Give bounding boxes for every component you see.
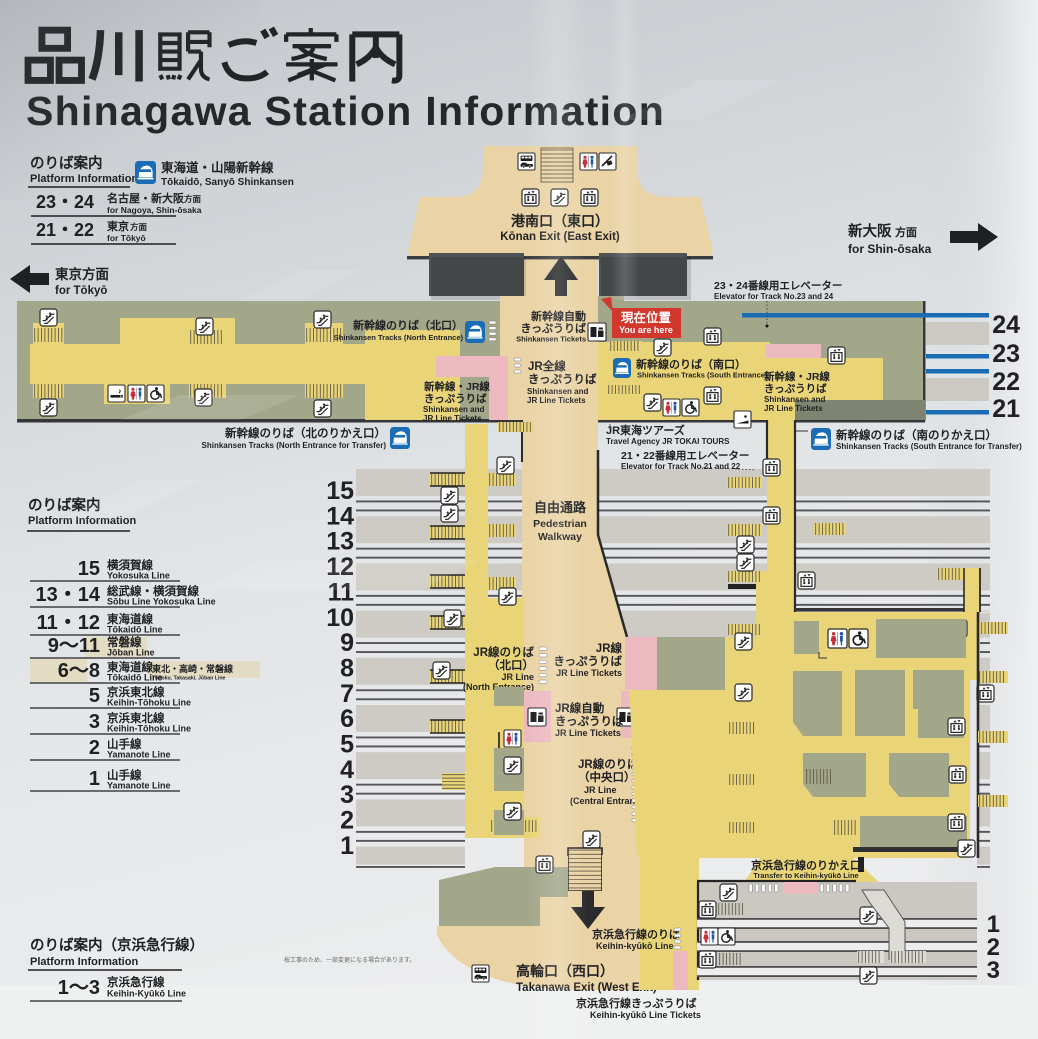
svg-text:for Shin-ōsaka: for Shin-ōsaka: [848, 242, 932, 256]
svg-text:京浜急行線のりば: 京浜急行線のりば: [592, 927, 680, 941]
svg-text:Elevator for Track No.23 and 2: Elevator for Track No.23 and 24: [714, 292, 834, 301]
svg-text:Shinkansen and: Shinkansen and: [423, 405, 484, 414]
svg-text:21・22: 21・22: [36, 220, 94, 240]
svg-text:桜工事のため、一部変更になる場合があります。: 桜工事のため、一部変更になる場合があります。: [284, 956, 415, 964]
svg-text:京浜急行線: 京浜急行線: [107, 975, 165, 989]
svg-text:JR線のりば: JR線のりば: [473, 645, 534, 659]
svg-text:新大阪: 新大阪: [848, 222, 892, 240]
svg-text:新幹線のりば（南のりかえ口）: 新幹線のりば（南のりかえ口）: [836, 428, 997, 442]
svg-text:Tōhoku, Takasaki, Jōban Line: Tōhoku, Takasaki, Jōban Line: [152, 676, 226, 682]
svg-text:JR東海ツアーズ: JR東海ツアーズ: [606, 423, 685, 437]
svg-text:のりば案内（京浜急行線）: のりば案内（京浜急行線）: [30, 936, 204, 954]
svg-text:22: 22: [992, 368, 1020, 396]
svg-text:Yamanote Line: Yamanote Line: [107, 750, 171, 760]
svg-text:for Nagoya, Shin-ōsaka: for Nagoya, Shin-ōsaka: [107, 205, 202, 215]
svg-text:10: 10: [326, 604, 354, 632]
svg-text:5: 5: [89, 685, 100, 707]
svg-text:3: 3: [987, 957, 1000, 984]
svg-text:13・14: 13・14: [36, 584, 101, 606]
svg-text:Shinkansen Tracks (South Entra: Shinkansen Tracks (South Entrance): [637, 371, 768, 380]
svg-text:現在位置: 現在位置: [621, 310, 672, 325]
svg-text:4: 4: [340, 756, 354, 784]
svg-text:新幹線のりば（北のりかえ口）: 新幹線のりば（北のりかえ口）: [225, 426, 386, 440]
svg-text:Tōkaidō Line: Tōkaidō Line: [107, 673, 163, 683]
svg-text:Keihin-kyūkō Line Tickets: Keihin-kyūkō Line Tickets: [590, 1010, 701, 1020]
svg-text:Shinkansen Tracks (South Entra: Shinkansen Tracks (South Entrance for Tr…: [836, 442, 1022, 451]
svg-text:東北・高崎・常磐線: 東北・高崎・常磐線: [152, 663, 233, 674]
svg-text:東京方面: 東京方面: [55, 266, 109, 282]
svg-text:2: 2: [340, 807, 354, 835]
svg-text:for Tōkyō: for Tōkyō: [55, 285, 107, 297]
svg-text:3: 3: [89, 711, 100, 733]
svg-text:Shinkansen Tracks (North Entra: Shinkansen Tracks (North Entrance for Tr…: [202, 441, 387, 450]
svg-text:15: 15: [326, 477, 354, 505]
svg-text:Elevator for Track No.21 and 2: Elevator for Track No.21 and 22: [621, 462, 741, 471]
svg-text:Shinkansen and: Shinkansen and: [764, 395, 825, 404]
svg-text:8: 8: [340, 654, 354, 682]
svg-text:Yokosuka Line: Yokosuka Line: [107, 571, 170, 581]
svg-text:京浜急行線きっぷうりば: 京浜急行線きっぷうりば: [576, 996, 697, 1010]
svg-text:JR Line Tickets: JR Line Tickets: [764, 404, 823, 413]
svg-text:新幹線のりば（南口）: 新幹線のりば（南口）: [636, 357, 746, 371]
svg-text:1〜3: 1〜3: [58, 977, 100, 999]
svg-text:Keihin-Kyūkō Line: Keihin-Kyūkō Line: [107, 989, 186, 999]
svg-text:Tōkaidō Line: Tōkaidō Line: [107, 625, 163, 635]
svg-text:11・12: 11・12: [37, 612, 100, 634]
svg-text:23・24番線用エレベーター: 23・24番線用エレベーター: [714, 279, 842, 292]
svg-text:23: 23: [992, 340, 1020, 368]
svg-text:Transfer to Keihin-kyūkō Line: Transfer to Keihin-kyūkō Line: [753, 871, 858, 880]
svg-text:Keihin-kyūkō Line: Keihin-kyūkō Line: [596, 941, 674, 951]
svg-text:You are here: You are here: [619, 325, 673, 335]
svg-text:方面: 方面: [130, 222, 148, 232]
svg-text:Platform Information: Platform Information: [30, 956, 138, 968]
svg-text:（北口）: （北口）: [488, 658, 534, 672]
svg-text:5: 5: [340, 731, 354, 759]
svg-text:6: 6: [340, 705, 354, 733]
svg-text:きっぷうりば: きっぷうりば: [424, 392, 487, 405]
svg-text:for Tōkyō: for Tōkyō: [107, 233, 146, 243]
svg-text:新幹線・JR線: 新幹線・JR線: [424, 380, 490, 393]
svg-text:Keihin-Tōhoku Line: Keihin-Tōhoku Line: [107, 724, 191, 734]
svg-text:6〜8: 6〜8: [58, 660, 100, 682]
svg-text:24: 24: [992, 311, 1020, 339]
svg-text:JR Line: JR Line: [584, 785, 617, 795]
svg-text:Travel Agency JR TOKAI TOURS: Travel Agency JR TOKAI TOURS: [606, 437, 730, 446]
svg-text:方面: 方面: [895, 225, 917, 239]
svg-text:Keihin-Tōhoku Line: Keihin-Tōhoku Line: [107, 698, 191, 708]
svg-text:京浜急行線のりかえ口: 京浜急行線のりかえ口: [751, 858, 861, 872]
svg-text:Shinkansen Tracks (North Entra: Shinkansen Tracks (North Entrance): [334, 333, 464, 342]
svg-text:7: 7: [340, 680, 354, 708]
svg-text:13: 13: [326, 528, 354, 556]
svg-text:Yamanote Line: Yamanote Line: [107, 781, 171, 791]
svg-text:きっぷうりば: きっぷうりば: [764, 382, 827, 395]
svg-text:JR線: JR線: [596, 641, 623, 655]
svg-text:9〜11: 9〜11: [48, 635, 100, 657]
svg-text:21・22番線用エレベーター: 21・22番線用エレベーター: [621, 449, 749, 462]
svg-text:15: 15: [78, 558, 100, 580]
svg-text:JR Line Tickets: JR Line Tickets: [423, 414, 482, 423]
svg-text:Jōban Line: Jōban Line: [107, 648, 155, 658]
svg-text:1: 1: [89, 768, 100, 790]
svg-text:2: 2: [89, 737, 100, 759]
svg-text:Sōbu Line Yokosuka Line: Sōbu Line Yokosuka Line: [107, 597, 216, 607]
svg-text:14: 14: [326, 502, 354, 530]
svg-text:1: 1: [340, 832, 354, 860]
svg-text:3: 3: [340, 781, 354, 809]
svg-text:新幹線のりば（北口）: 新幹線のりば（北口）: [353, 318, 463, 332]
svg-text:21: 21: [992, 395, 1020, 423]
svg-text:9: 9: [340, 629, 354, 657]
svg-text:東京: 東京: [107, 219, 129, 233]
svg-text:新幹線・JR線: 新幹線・JR線: [764, 370, 830, 383]
